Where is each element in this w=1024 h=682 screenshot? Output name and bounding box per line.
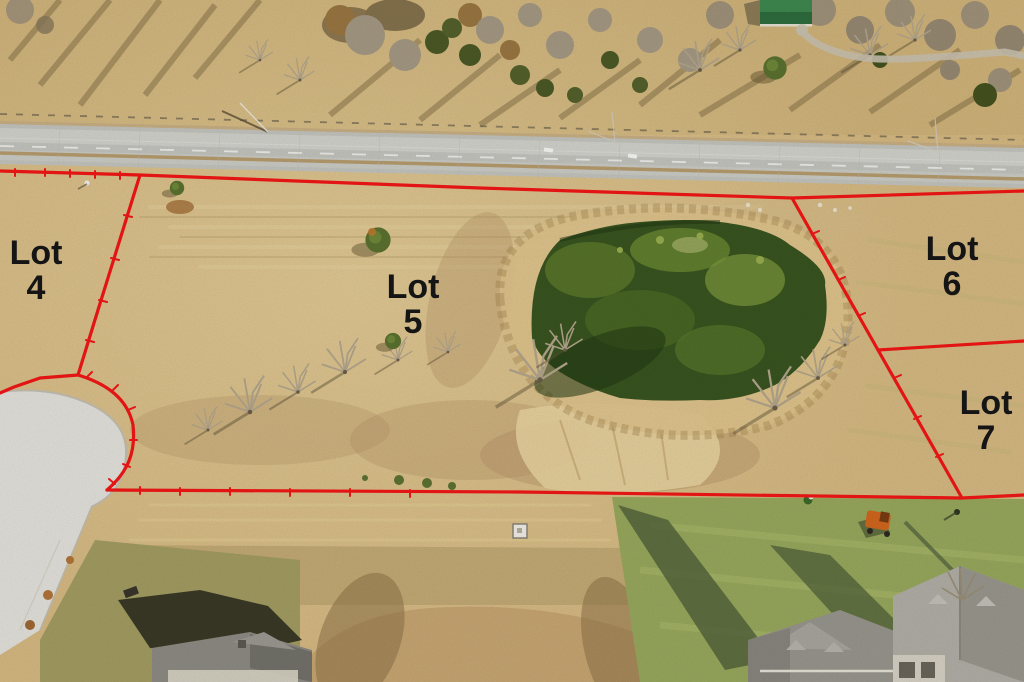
aerial-lot-photo: Lot 4 Lot 5 Lot 6 Lot 7	[0, 0, 1024, 682]
lot-5-number: 5	[387, 305, 440, 340]
lot-4-number: 4	[10, 271, 63, 306]
lot-6-number: 6	[926, 267, 979, 302]
lot-6-label: Lot 6	[926, 232, 979, 302]
photo-grain	[0, 0, 1024, 682]
lot-4-word: Lot	[10, 236, 63, 271]
aerial-photo-canvas	[0, 0, 1024, 682]
lot-6-word: Lot	[926, 232, 979, 267]
lot-7-number: 7	[960, 421, 1013, 456]
lot-4-label: Lot 4	[10, 236, 63, 306]
lot-5-word: Lot	[387, 270, 440, 305]
lot-7-label: Lot 7	[960, 386, 1013, 456]
lot-7-word: Lot	[960, 386, 1013, 421]
lot-5-label: Lot 5	[387, 270, 440, 340]
